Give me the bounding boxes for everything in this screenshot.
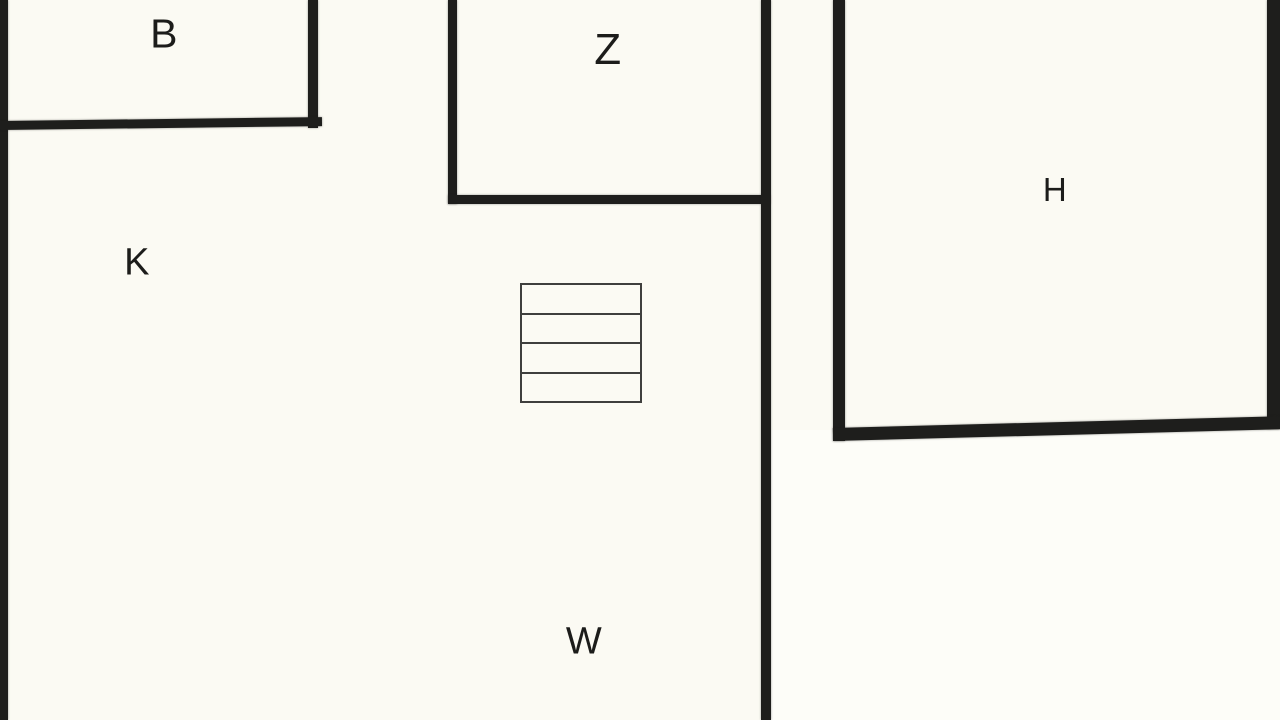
stair-step	[522, 313, 640, 343]
stair-step	[522, 372, 640, 402]
room-label-k: K	[124, 242, 150, 285]
room-label-z: Z	[594, 25, 621, 75]
floor-plan: B Z K H W	[0, 0, 1280, 720]
room-label-h: H	[1043, 171, 1067, 209]
wall-center-vertical	[761, 0, 771, 720]
stairs-icon	[520, 283, 642, 403]
wall-room-h-right	[1267, 0, 1280, 429]
wall-room-z-bottom	[448, 195, 770, 204]
wall-outer-left	[0, 0, 8, 720]
room-label-w: W	[566, 621, 602, 664]
stair-step	[522, 342, 640, 372]
wall-room-z-left	[448, 0, 457, 204]
wall-room-b-right	[308, 0, 318, 128]
stair-step	[522, 285, 640, 313]
wall-room-h-left	[833, 0, 845, 441]
exterior-area	[770, 430, 1280, 720]
wall-room-b-bottom	[0, 117, 322, 130]
room-label-b: B	[150, 11, 178, 58]
